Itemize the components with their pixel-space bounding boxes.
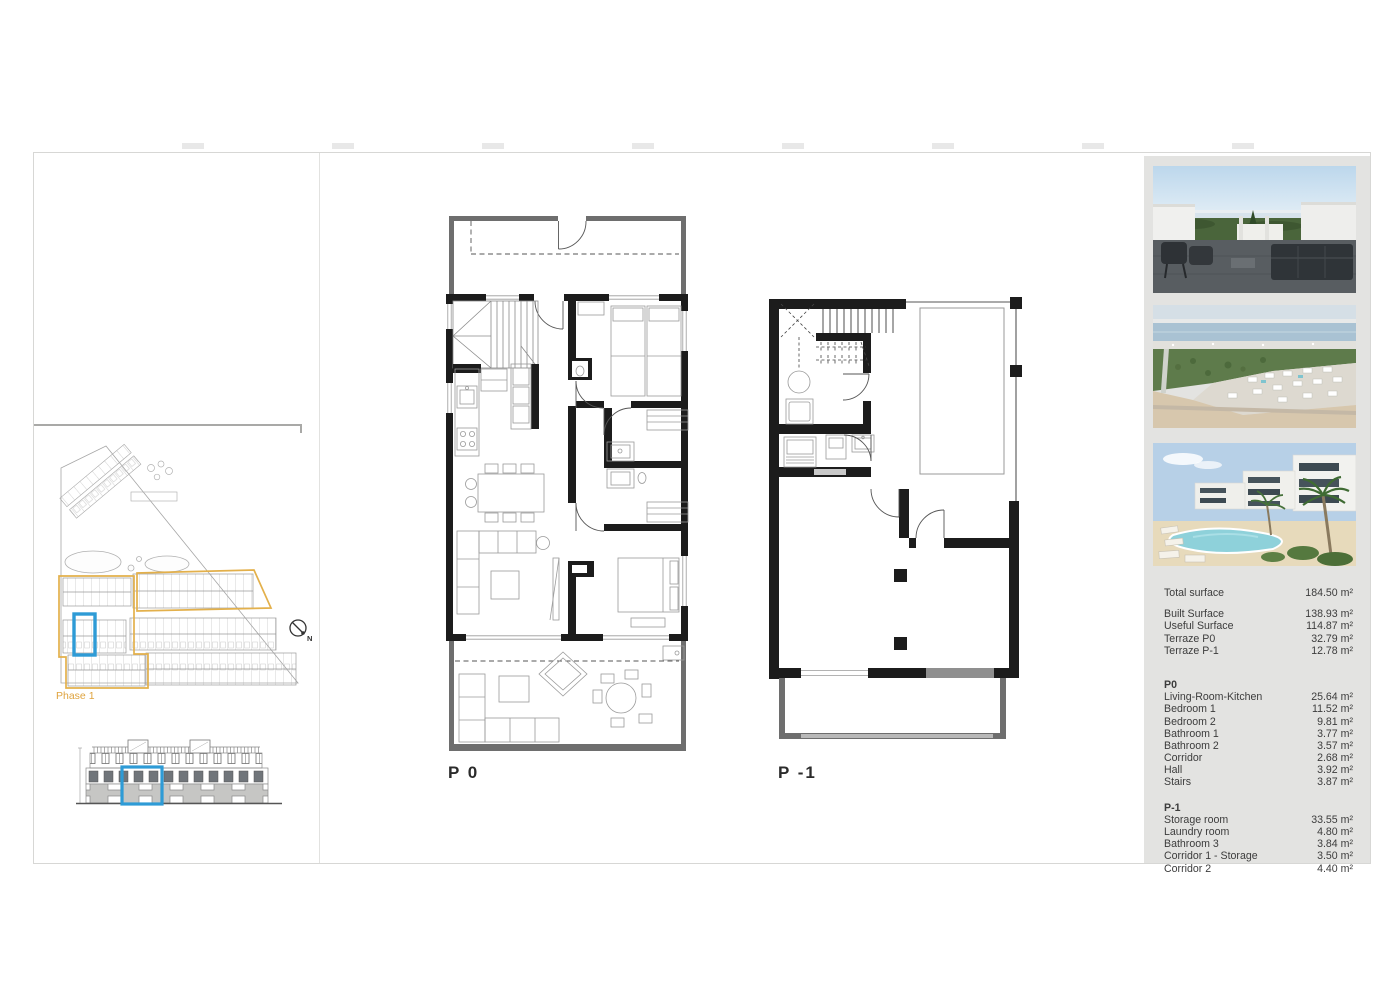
elevation-roof-railing [92, 747, 260, 753]
p0-bottom-terrace [449, 641, 686, 751]
surface-row-label: Useful Surface [1164, 620, 1233, 632]
divider-line [34, 424, 302, 426]
surface-row-label: Hall [1164, 764, 1182, 776]
surface-row-label: Bathroom 2 [1164, 740, 1219, 752]
surface-row-label: Corridor 2 [1164, 863, 1211, 875]
floorplan-p1-label: P -1 [778, 763, 817, 783]
surface-row-value: 9.81 m² [1317, 716, 1353, 728]
total-surface-value: 184.50 m² [1305, 587, 1353, 599]
p0-rows: Living-Room-Kitchen 25.64 m² Bedroom 1 1… [1164, 691, 1353, 789]
p1-walls [769, 297, 1022, 679]
elevation-top-floor [90, 753, 262, 768]
surface-row-value: 12.78 m² [1311, 645, 1353, 657]
surface-row-value: 32.79 m² [1311, 633, 1353, 645]
site-rows [63, 574, 296, 686]
p0-kitchen [453, 364, 539, 456]
surface-row: Storage room 33.55 m² [1164, 814, 1353, 826]
p1-section-heading: P-1 [1164, 802, 1353, 814]
surface-row-value: 3.87 m² [1317, 776, 1353, 788]
p1-storage [769, 569, 1019, 678]
plan-sheet: N Phase 1 [33, 152, 1371, 864]
surface-row-value: 3.84 m² [1317, 838, 1353, 850]
surface-row-value: 3.50 m² [1317, 850, 1353, 862]
surface-row-label: Stairs [1164, 776, 1191, 788]
surface-row: Stairs 3.87 m² [1164, 776, 1353, 788]
p0-staircase [453, 301, 538, 368]
surface-row-label: Bedroom 2 [1164, 716, 1216, 728]
surface-row: Laundry room 4.80 m² [1164, 826, 1353, 838]
floorplan-p0 [441, 206, 706, 761]
floorplan-p1 [766, 289, 1026, 746]
surface-row-label: Corridor [1164, 752, 1202, 764]
surface-row-value: 3.92 m² [1317, 764, 1353, 776]
surface-row-label: Bathroom 1 [1164, 728, 1219, 740]
surface-row-value: 138.93 m² [1305, 608, 1353, 620]
surface-row-value: 3.57 m² [1317, 740, 1353, 752]
surface-row: Terraze P-1 12.78 m² [1164, 645, 1353, 657]
surface-row-label: Bathroom 3 [1164, 838, 1219, 850]
surface-row-label: Laundry room [1164, 826, 1229, 838]
surface-row: Built Surface 138.93 m² [1164, 608, 1353, 620]
surface-row: Hall 3.92 m² [1164, 764, 1353, 776]
site-trees [148, 461, 173, 480]
total-surface-row: Total surface 184.50 m² [1164, 587, 1353, 599]
surface-row-value: 114.87 m² [1306, 620, 1353, 632]
surface-row: Bedroom 2 9.81 m² [1164, 716, 1353, 728]
p0-doors [535, 301, 631, 531]
p1-rows: Storage room 33.55 m² Laundry room 4.80 … [1164, 814, 1353, 875]
left-panel: N Phase 1 [34, 153, 320, 863]
surface-row-value: 25.64 m² [1311, 691, 1353, 703]
floorplan-p0-label: P 0 [448, 763, 479, 783]
p0-bathroom1 [576, 366, 688, 461]
p0-bedroom2 [618, 558, 679, 627]
compass-north-label: N [307, 634, 312, 643]
surface-row-label: Storage room [1164, 814, 1228, 826]
surface-row-label: Bedroom 1 [1164, 703, 1216, 715]
sidebar: Total surface 184.50 m² Built Surface 13… [1144, 156, 1370, 863]
brochure-canvas: N Phase 1 [0, 0, 1400, 990]
surface-row-value: 2.68 m² [1317, 752, 1353, 764]
elevation-mid-floor [86, 768, 268, 784]
surface-row: Living-Room-Kitchen 25.64 m² [1164, 691, 1353, 703]
p0-top-terrace [449, 216, 686, 296]
surface-row: Corridor 2 4.40 m² [1164, 863, 1353, 875]
surface-row-label: Living-Room-Kitchen [1164, 691, 1262, 703]
north-compass-icon [290, 620, 306, 636]
p1-bathroom3 [786, 371, 869, 424]
surface-row-value: 33.55 m² [1311, 814, 1353, 826]
photo-pool-render [1153, 443, 1356, 566]
surface-row-value: 3.77 m² [1317, 728, 1353, 740]
summary-rows: Built Surface 138.93 m² Useful Surface 1… [1164, 608, 1353, 657]
p1-laundry [784, 435, 874, 467]
building-elevation [72, 736, 287, 814]
elevation-ground-floor [86, 784, 268, 803]
total-surface-label: Total surface [1164, 587, 1224, 599]
p1-terrace [779, 678, 1006, 739]
photo-aerial-coast [1153, 305, 1356, 428]
site-plan: N Phase 1 [42, 440, 334, 710]
p0-bathroom2 [607, 469, 688, 522]
surface-row: Bedroom 1 11.52 m² [1164, 703, 1353, 715]
surface-row: Terraze P0 32.79 m² [1164, 633, 1353, 645]
surface-row-label: Terraze P0 [1164, 633, 1215, 645]
surface-row-value: 4.80 m² [1317, 826, 1353, 838]
surface-row: Bathroom 3 3.84 m² [1164, 838, 1353, 850]
surface-row-label: Corridor 1 - Storage [1164, 850, 1258, 862]
surface-row: Bathroom 1 3.77 m² [1164, 728, 1353, 740]
p0-living-dining [457, 464, 559, 620]
p0-bedroom1 [578, 302, 681, 396]
surface-row: Useful Surface 114.87 m² [1164, 620, 1353, 632]
surface-row-label: Terraze P-1 [1164, 645, 1219, 657]
surface-row-label: Built Surface [1164, 608, 1224, 620]
surface-row: Bathroom 2 3.57 m² [1164, 740, 1353, 752]
surface-row: Corridor 2.68 m² [1164, 752, 1353, 764]
photo-terrace-render [1153, 166, 1356, 293]
surface-table: Total surface 184.50 m² Built Surface 13… [1144, 587, 1370, 875]
phase1-label: Phase 1 [56, 690, 95, 702]
divider-line-jog [300, 424, 302, 433]
surface-row-value: 11.52 m² [1312, 703, 1353, 715]
surface-row-value: 4.40 m² [1317, 863, 1353, 875]
p0-section-heading: P0 [1164, 679, 1353, 691]
top-artifacts [100, 143, 1340, 149]
surface-row: Corridor 1 - Storage 3.50 m² [1164, 850, 1353, 862]
